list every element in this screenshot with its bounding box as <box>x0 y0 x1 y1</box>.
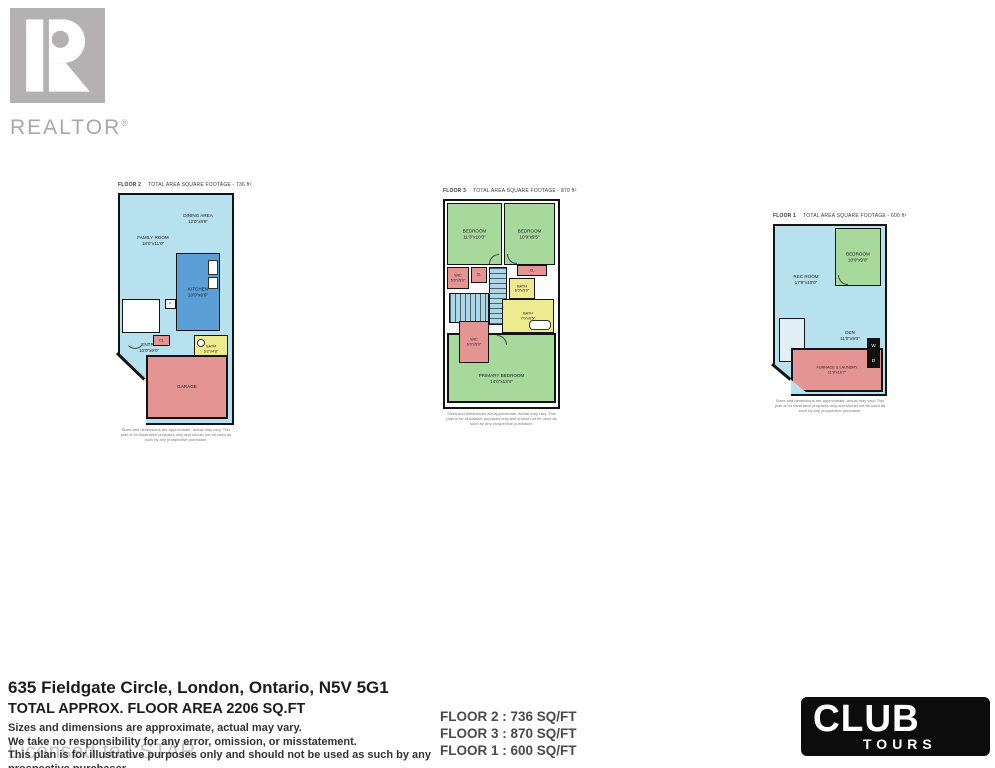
room-bedroom1: BEDROOM 11'3"x10'0" <box>447 203 502 265</box>
plan-floor3-header: FLOOR 3TOTAL AREA SQUARE FOOTAGE - 870 f… <box>443 188 560 199</box>
plan-floor2-drawing: KITCHEN 10'0"x9'9" F DINING AREA 12'0"x9… <box>118 193 234 425</box>
property-address: 635 Fieldgate Circle, London, Ontario, N… <box>8 678 438 698</box>
room-label-bath2: BATH 7'0"x6'5" <box>503 311 553 320</box>
registered-mark: ® <box>121 118 128 128</box>
room-bedroom2: BEDROOM 10'9"x9'5" <box>504 203 555 265</box>
room-wic1: WIC 5'0"x5'0" <box>447 267 469 289</box>
plan-floor3-drawing: BEDROOM 11'3"x10'0" BEDROOM 10'9"x9'5" W… <box>443 199 560 409</box>
room-wic2: WIC 6'0"x5'0" <box>459 321 489 363</box>
club-tours-club-text: CLUB <box>813 698 920 741</box>
dryer-label: D <box>872 358 875 363</box>
room-cl1: CL <box>471 267 487 283</box>
summary-floor3: FLOOR 3 : 870 SQ/FT <box>440 725 577 742</box>
plan-floor1-drawing: BEDROOM 10'9"x9'0" REC ROOM 17'9"x10'0" … <box>773 224 887 396</box>
realtor-wordmark: REALTOR® <box>10 116 140 140</box>
room-cl2: CL <box>517 265 547 276</box>
room-label-rec: REC ROOM 17'9"x10'0" <box>781 274 831 285</box>
room-bath2: BATH 7'0"x6'5" <box>502 299 554 333</box>
f-box-label: F <box>166 302 175 307</box>
kitchen-f-box: F <box>165 299 176 309</box>
room-bedroom-floor1: BEDROOM 10'9"x9'0" <box>835 228 881 286</box>
realtor-r-icon <box>10 8 105 103</box>
total-floor-area: TOTAL APPROX. FLOOR AREA 2206 SQ.FT <box>8 701 438 717</box>
floorplan-sheet: REALTOR® FLOOR 2TOTAL AREA SQUARE FOOTAG… <box>0 0 995 768</box>
plan-floor1-disclaimer: Sizes and dimensions are approximate, ac… <box>773 398 887 414</box>
room-label-bedroom1: BEDROOM 11'3"x10'0" <box>448 228 501 239</box>
room-garage: GARAGE <box>146 355 228 419</box>
room-kitchen: KITCHEN 10'0"x9'9" <box>176 253 220 331</box>
room-closet-floor2: CL <box>153 335 170 346</box>
plan-floor2-area: TOTAL AREA SQUARE FOOTAGE - 736 ft² <box>148 182 252 188</box>
floor-summary: FLOOR 2 : 736 SQ/FT FLOOR 3 : 870 SQ/FT … <box>440 708 577 759</box>
plan-floor3-disclaimer: Sizes and dimensions are approximate, ac… <box>443 411 560 427</box>
stairs-floor2 <box>122 299 160 333</box>
disclaimer-line: We take no responsibility for any error,… <box>8 736 438 750</box>
summary-floor1: FLOOR 1 : 600 SQ/FT <box>440 742 577 759</box>
room-label-dining: DINING AREA 12'0"x9'9" <box>170 213 226 224</box>
club-tours-logo: CLUB TOURS <box>801 697 990 756</box>
room-label-bath1: BATH 6'0"x5'0" <box>510 284 534 293</box>
stairs-floor3-lower <box>449 293 489 323</box>
address-block: 635 Fieldgate Circle, London, Ontario, N… <box>8 678 438 768</box>
club-tours-tours-text: TOURS <box>863 736 937 752</box>
room-label-garage: GARAGE <box>148 384 226 390</box>
fridge-fixture <box>208 260 218 275</box>
disclaimer-line: Sizes and dimensions are approximate, ac… <box>8 722 438 736</box>
door-arc <box>489 254 499 264</box>
room-label-family: FAMILY ROOM 18'0"x11'0" <box>124 235 182 246</box>
room-label-closet: CL <box>154 338 169 343</box>
plan-floor1: FLOOR 1TOTAL AREA SQUARE FOOTAGE - 600 f… <box>773 213 887 414</box>
tub-fixture <box>529 320 551 330</box>
plan-floor3: FLOOR 3TOTAL AREA SQUARE FOOTAGE - 870 f… <box>443 188 560 427</box>
plan-floor1-header: FLOOR 1TOTAL AREA SQUARE FOOTAGE - 600 f… <box>773 213 887 224</box>
plan-floor2: FLOOR 2TOTAL AREA SQUARE FOOTAGE - 736 f… <box>118 182 234 443</box>
plan-floor2-header: FLOOR 2TOTAL AREA SQUARE FOOTAGE - 736 f… <box>118 182 234 193</box>
disclaimer-block: Sizes and dimensions are approximate, ac… <box>8 722 438 768</box>
room-label-wic1: WIC 5'0"x5'0" <box>448 273 468 282</box>
realtor-logo: REALTOR® <box>10 8 140 140</box>
room-label-bedroom-floor1: BEDROOM 10'9"x9'0" <box>836 251 880 262</box>
room-label-bedroom2: BEDROOM 10'9"x9'5" <box>505 228 554 239</box>
door-arc <box>507 254 517 264</box>
plan-floor3-area: TOTAL AREA SQUARE FOOTAGE - 870 ft² <box>473 188 577 194</box>
summary-floor2: FLOOR 2 : 736 SQ/FT <box>440 708 577 725</box>
room-label-primary: PRIMARY BEDROOM 14'0"x13'4" <box>449 373 554 384</box>
plan-floor3-label: FLOOR 3 <box>443 188 466 194</box>
door-arc <box>497 335 507 345</box>
washer-label: W <box>871 343 875 348</box>
realtor-label: REALTOR <box>10 116 121 139</box>
room-label-bath-floor2: BATH 5'2"x4'9" <box>195 344 227 353</box>
disclaimer-line: This plan is for illustrative purposes o… <box>8 749 438 768</box>
room-label-wic2: WIC 6'0"x5'0" <box>460 337 488 346</box>
plan-floor2-label: FLOOR 2 <box>118 182 141 188</box>
room-bath1: BATH 6'0"x5'0" <box>509 278 535 299</box>
room-label-cl1: CL <box>472 273 486 278</box>
washer-dryer-unit: W D <box>867 338 880 368</box>
plan-floor1-label: FLOOR 1 <box>773 213 796 219</box>
room-label-kitchen: KITCHEN 10'0"x9'9" <box>177 286 219 297</box>
room-label-cl2: CL <box>518 268 546 273</box>
door-arc <box>838 275 848 285</box>
plan-corner-cut <box>118 353 146 425</box>
plan-floor1-area: TOTAL AREA SQUARE FOOTAGE - 600 ft² <box>803 213 907 219</box>
plan-floor2-disclaimer: Sizes and dimensions are approximate, ac… <box>118 427 234 443</box>
